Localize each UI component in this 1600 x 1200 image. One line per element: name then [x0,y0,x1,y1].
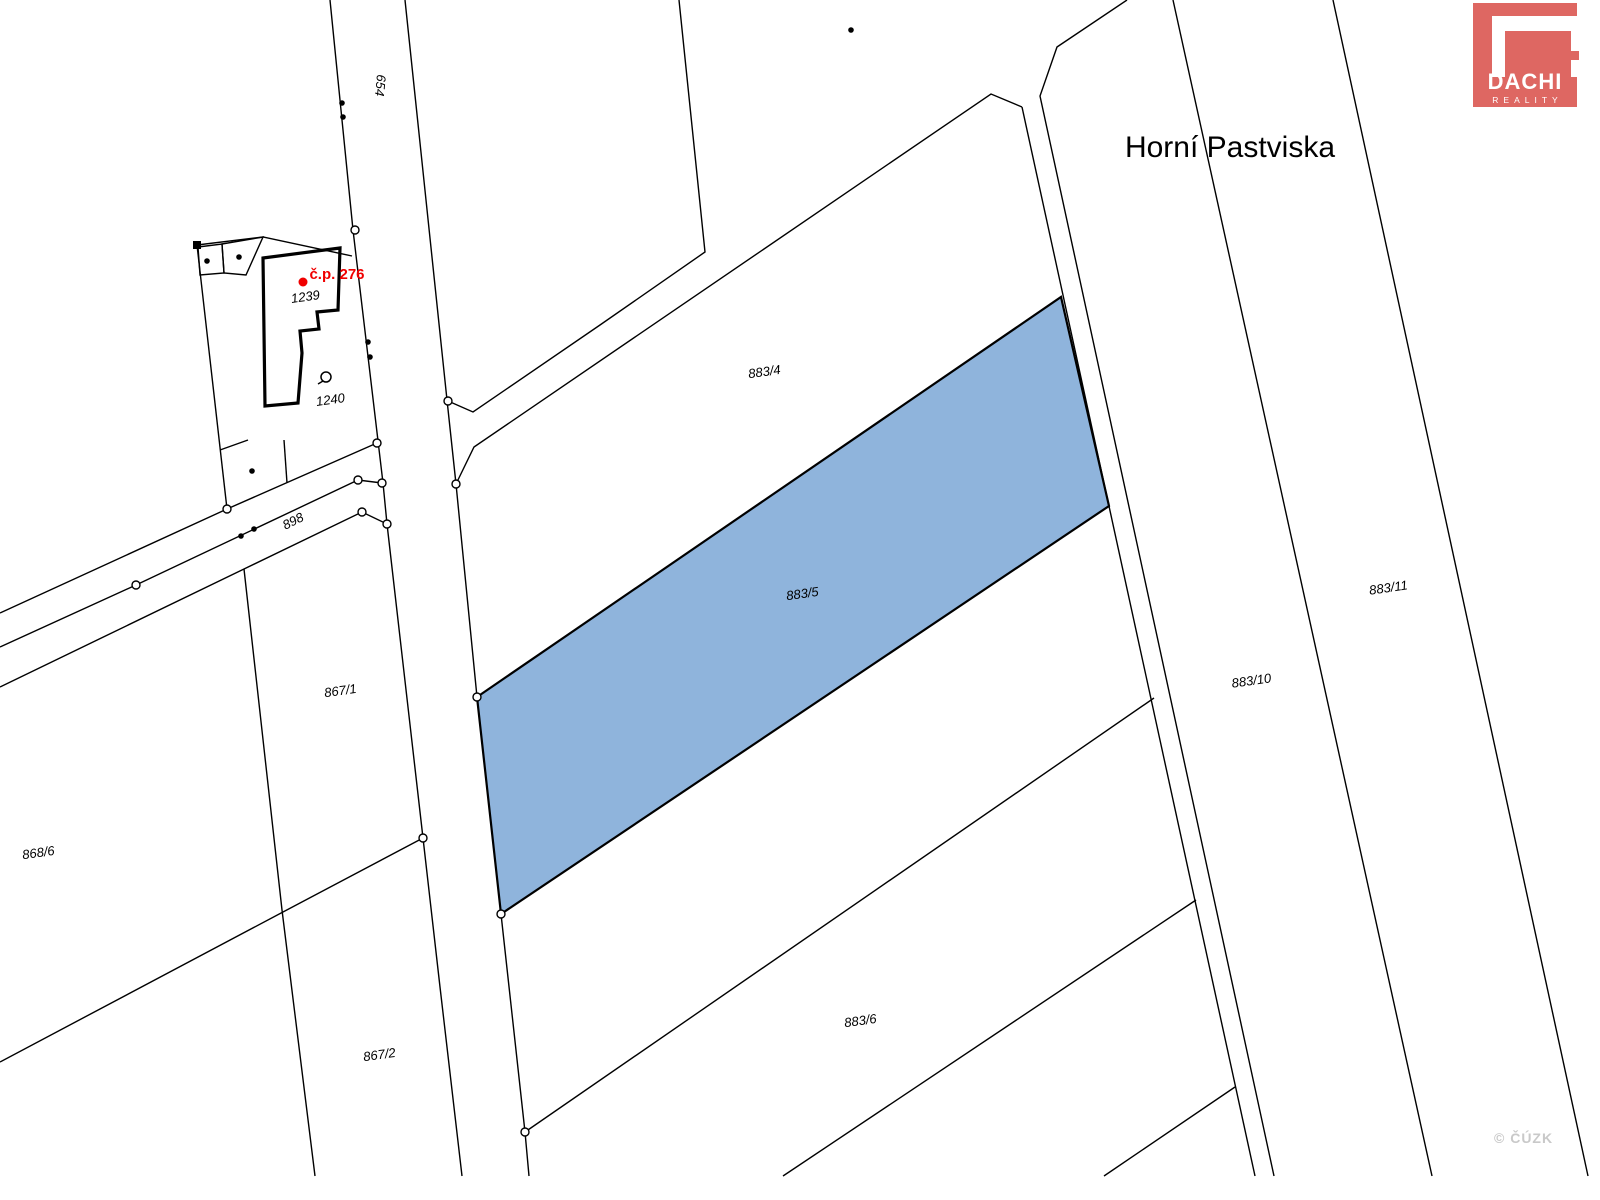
map-symbol-circle [321,372,331,382]
boundary-point-circle [497,910,505,918]
parcel-label-868-6: 868/6 [21,843,56,862]
garden-wedge-line-2 [284,440,287,483]
dachi-reality-logo: DACHI REALITY [1473,3,1577,107]
road-654-right-edge [405,0,529,1176]
boundary-point-circle [132,581,140,589]
parcel-label-898: 898 [280,509,307,533]
building-number-label: č.p. 276 [309,266,364,283]
parcel-883-10-west-boundary [1040,0,1274,1176]
boundary-867-1-867-2 [0,838,423,1062]
survey-point-dot [365,339,371,345]
parcel-label-883-6: 883/6 [843,1011,878,1030]
lower-strip-boundary [1104,1087,1235,1176]
path-898-middle-line [0,480,382,647]
small-building-1 [198,244,224,275]
boundary-point-circle [521,1128,529,1136]
survey-point-dot [339,100,345,106]
path-898-north-line [0,443,377,613]
survey-point-dot [251,526,257,532]
survey-point-dot [367,354,373,360]
survey-point-dot [238,533,244,539]
survey-point-dot [236,254,242,260]
boundary-868-6-867-1 [244,569,315,1176]
parcel-883-6-south-boundary [783,900,1196,1176]
path-898-south-line [0,512,387,687]
highlighted-parcel-883-5[interactable] [477,297,1109,914]
locality-label: Horní Pastviska [1125,131,1335,164]
parcel-label-1240: 1240 [315,390,346,409]
strip-west-line [1022,107,1255,1176]
cuzk-watermark: © ČÚZK [1494,1130,1553,1146]
road-label-654: 654 [372,74,389,97]
boundary-point-circle [378,479,386,487]
boundary-point-circle [383,520,391,528]
small-building-2 [222,237,263,275]
parcel-label-867-1: 867/1 [323,681,357,700]
garden-block-north-edge [197,237,352,256]
boundary-point-circle [419,834,427,842]
building-number-point [299,278,308,287]
logo-title: DACHI [1473,69,1577,95]
boundary-point-circle [223,505,231,513]
boundary-point-circle [444,397,452,405]
boundary-point-circle [354,476,362,484]
survey-point-dot [340,114,346,120]
corner-point-square [193,241,201,249]
parcel-label-867-2: 867/2 [362,1045,397,1064]
house-icon [1492,16,1584,77]
boundary-point-circle [473,693,481,701]
garden-block-west-edge [197,245,227,509]
boundary-point-circle [373,439,381,447]
logo-subtitle: REALITY [1473,95,1577,105]
garden-wedge-line-1 [220,440,248,450]
boundary-point-circle [452,480,460,488]
parcel-label-883-11: 883/11 [1368,577,1409,597]
parcel-label-883-10: 883/10 [1231,670,1273,690]
map-symbol-tail [318,381,323,384]
survey-point-dot [848,27,854,33]
parcel-label-1239: 1239 [290,287,321,306]
parcel-label-883-4: 883/4 [747,362,781,381]
boundary-point-circle [358,508,366,516]
house-icon-notch [1535,51,1579,60]
map-canvas: 654č.p. 27612391240898868/6867/1867/2883… [0,0,1600,1200]
survey-point-dot [204,258,210,264]
boundary-point-circle [351,226,359,234]
cadastral-map-view: 654č.p. 27612391240898868/6867/1867/2883… [0,0,1600,1200]
road-654-left-edge [330,0,462,1176]
survey-point-dot [249,468,255,474]
north-parcel-west-boundary [448,0,705,412]
